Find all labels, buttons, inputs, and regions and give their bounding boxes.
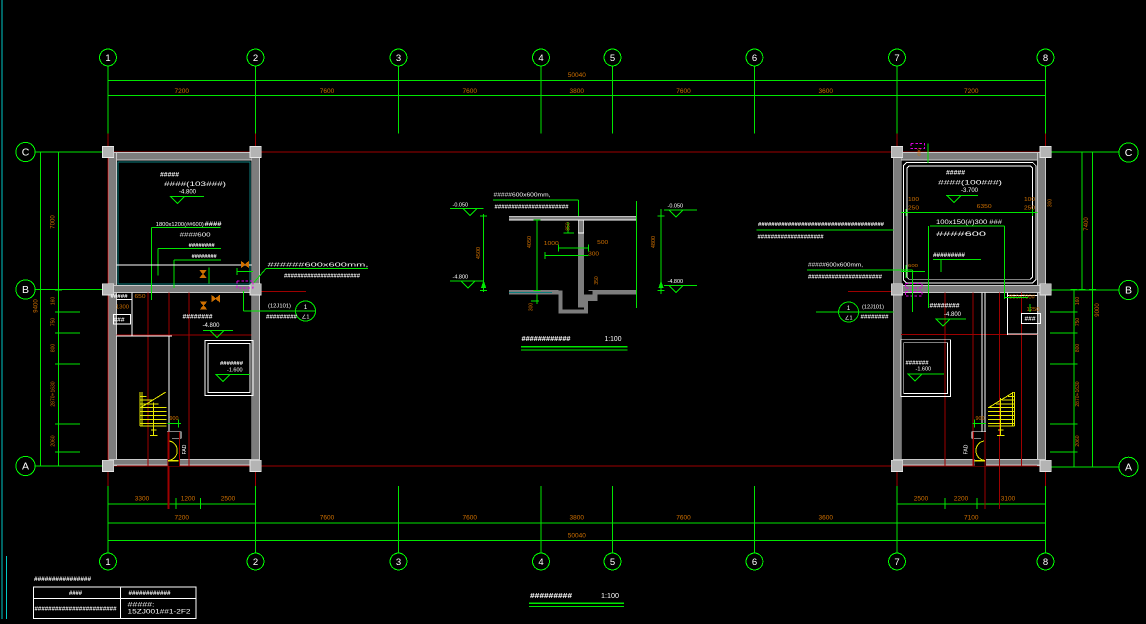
svg-text:###: ### bbox=[1025, 317, 1036, 323]
svg-text:B: B bbox=[22, 284, 29, 296]
svg-text:C: C bbox=[22, 147, 30, 159]
svg-text:#####: ##### bbox=[946, 171, 966, 177]
svg-text:3: 3 bbox=[396, 53, 401, 64]
svg-text:############: ############ bbox=[129, 591, 172, 597]
svg-text:8: 8 bbox=[1043, 557, 1048, 568]
svg-text:3800: 3800 bbox=[570, 88, 585, 95]
svg-text:500: 500 bbox=[597, 240, 608, 246]
svg-text:4050: 4050 bbox=[527, 236, 533, 248]
svg-text:7: 7 bbox=[894, 557, 899, 568]
svg-text:7600: 7600 bbox=[320, 515, 335, 522]
svg-text:4800: 4800 bbox=[651, 236, 657, 248]
svg-text:2060: 2060 bbox=[51, 435, 57, 446]
svg-text:900: 900 bbox=[170, 416, 179, 422]
svg-text:9000: 9000 bbox=[1095, 303, 1101, 317]
svg-text:1: 1 bbox=[105, 53, 110, 64]
svg-text:∠1: ∠1 bbox=[845, 315, 853, 322]
svg-text:7600: 7600 bbox=[463, 88, 478, 95]
svg-text:-3.700: -3.700 bbox=[961, 188, 979, 194]
svg-text:50040: 50040 bbox=[568, 72, 586, 79]
svg-text:-0.050: -0.050 bbox=[668, 204, 684, 210]
svg-text:300: 300 bbox=[529, 303, 535, 312]
svg-text:100: 100 bbox=[908, 197, 919, 203]
svg-text:7200: 7200 bbox=[175, 88, 190, 95]
svg-text:####(100###): ####(100###) bbox=[938, 181, 1002, 187]
svg-text:300: 300 bbox=[588, 252, 599, 258]
svg-text:9400: 9400 bbox=[34, 299, 40, 313]
svg-text:160: 160 bbox=[1075, 297, 1081, 306]
svg-text:800: 800 bbox=[51, 344, 57, 353]
svg-text:C: C bbox=[1125, 147, 1133, 159]
svg-text:########: ######## bbox=[930, 304, 961, 310]
svg-text:6350: 6350 bbox=[977, 204, 992, 210]
svg-text:A: A bbox=[1125, 461, 1132, 473]
svg-text:50040: 50040 bbox=[568, 533, 586, 540]
svg-text:######################: ###################### bbox=[808, 275, 882, 281]
svg-text:-4.800: -4.800 bbox=[203, 323, 221, 329]
svg-text:#####600x600mm,: #####600x600mm, bbox=[494, 193, 552, 199]
svg-text:################: ################ bbox=[34, 577, 92, 583]
svg-text:160: 160 bbox=[51, 297, 57, 306]
svg-text:7600: 7600 bbox=[676, 88, 691, 95]
svg-text:-4.800: -4.800 bbox=[179, 190, 197, 196]
svg-text:7400: 7400 bbox=[1084, 217, 1090, 231]
svg-text:850: 850 bbox=[566, 222, 572, 231]
svg-text:4: 4 bbox=[538, 557, 543, 568]
svg-text:########################: ######################## bbox=[35, 607, 118, 613]
svg-text:350: 350 bbox=[594, 276, 600, 285]
svg-text:########: ######## bbox=[192, 254, 217, 260]
svg-text:4: 4 bbox=[538, 53, 543, 64]
svg-text:750: 750 bbox=[51, 318, 57, 327]
svg-text:########: ######## bbox=[861, 315, 889, 321]
svg-text:1000: 1000 bbox=[544, 241, 559, 247]
svg-text:7: 7 bbox=[894, 53, 899, 64]
svg-text:3300: 3300 bbox=[135, 496, 150, 503]
svg-text:####600: ####600 bbox=[180, 233, 211, 239]
svg-text:####(103###): ####(103###) bbox=[164, 182, 226, 188]
svg-text:4500: 4500 bbox=[476, 247, 482, 259]
svg-text:############: ############ bbox=[522, 336, 571, 343]
svg-text:600: 600 bbox=[908, 263, 919, 268]
svg-text:FAD: FAD bbox=[964, 444, 970, 454]
svg-text:1200: 1200 bbox=[181, 496, 196, 503]
svg-text:-1.600: -1.600 bbox=[227, 368, 243, 374]
svg-text:5: 5 bbox=[610, 557, 615, 568]
svg-text:####600: ####600 bbox=[936, 232, 987, 238]
svg-text:1:100: 1:100 bbox=[605, 336, 622, 343]
svg-text:########: ######## bbox=[183, 315, 214, 321]
svg-text:3: 3 bbox=[396, 557, 401, 568]
svg-text:100x150(#)300 ###: 100x150(#)300 ### bbox=[936, 220, 1003, 226]
svg-text:250: 250 bbox=[1024, 206, 1035, 212]
svg-text:2500: 2500 bbox=[221, 496, 236, 503]
svg-text:8: 8 bbox=[1043, 53, 1048, 64]
svg-text:#####: ##### bbox=[160, 173, 180, 179]
svg-text:1300: 1300 bbox=[116, 305, 129, 311]
svg-text:FAD: FAD bbox=[182, 444, 188, 454]
svg-text:7100: 7100 bbox=[964, 515, 979, 522]
svg-text:900: 900 bbox=[976, 416, 985, 422]
svg-text:(12J101): (12J101) bbox=[268, 304, 291, 310]
svg-text:6: 6 bbox=[752, 53, 757, 64]
svg-text:650: 650 bbox=[135, 294, 146, 300]
svg-text:######################: ###################### bbox=[495, 205, 569, 211]
svg-text:2500: 2500 bbox=[914, 496, 929, 503]
svg-text:2: 2 bbox=[253, 53, 258, 64]
svg-text:7600: 7600 bbox=[676, 515, 691, 522]
svg-text:#########: ######### bbox=[530, 591, 573, 600]
svg-text:#########: ######### bbox=[933, 253, 966, 259]
svg-text:2200: 2200 bbox=[954, 496, 969, 503]
svg-text:15ZJ001##1-2F2: 15ZJ001##1-2F2 bbox=[128, 609, 192, 616]
svg-text:600: 600 bbox=[917, 148, 922, 156]
svg-text:###: ### bbox=[114, 318, 125, 324]
svg-text:100: 100 bbox=[1024, 197, 1035, 203]
svg-text:-4.800: -4.800 bbox=[453, 275, 469, 281]
svg-text:3600: 3600 bbox=[819, 515, 834, 522]
svg-text:7600: 7600 bbox=[463, 515, 478, 522]
svg-text:#######: ####### bbox=[220, 361, 243, 367]
svg-text:#########: ######### bbox=[266, 315, 297, 321]
svg-text:800: 800 bbox=[1075, 344, 1081, 353]
svg-text:250: 250 bbox=[908, 206, 919, 212]
svg-text:#####: ##### bbox=[111, 294, 128, 300]
svg-text:1250: 1250 bbox=[1027, 307, 1040, 313]
svg-text:#######################: ####################### bbox=[284, 274, 360, 280]
svg-text:3600: 3600 bbox=[819, 88, 834, 95]
svg-text:5: 5 bbox=[610, 53, 615, 64]
svg-text:-4.800: -4.800 bbox=[944, 312, 962, 318]
svg-text:750: 750 bbox=[1075, 318, 1081, 327]
svg-text:6: 6 bbox=[752, 557, 757, 568]
svg-text:1: 1 bbox=[105, 557, 110, 568]
svg-text:2870+1630: 2870+1630 bbox=[1075, 381, 1081, 406]
svg-text:7000: 7000 bbox=[51, 215, 57, 229]
svg-text:######600x600mm,: ######600x600mm, bbox=[268, 263, 370, 269]
svg-text:####: #### bbox=[69, 591, 83, 597]
svg-text:B: B bbox=[1125, 285, 1132, 297]
svg-text:-1.600: -1.600 bbox=[916, 367, 932, 373]
svg-text:##############################: ###################################### bbox=[758, 222, 884, 228]
svg-text:2: 2 bbox=[253, 557, 258, 568]
svg-text:7200: 7200 bbox=[175, 515, 190, 522]
svg-text:3100: 3100 bbox=[1001, 496, 1016, 503]
svg-text:-0.050: -0.050 bbox=[453, 203, 469, 209]
svg-text:7200: 7200 bbox=[964, 88, 979, 95]
svg-text:#####600x600mm,: #####600x600mm, bbox=[808, 263, 864, 269]
svg-text:∠1: ∠1 bbox=[302, 314, 310, 321]
svg-text:2060: 2060 bbox=[1075, 435, 1081, 446]
svg-text:####################: #################### bbox=[758, 235, 824, 241]
svg-text:1:100: 1:100 bbox=[601, 593, 619, 600]
svg-text:-4.800: -4.800 bbox=[668, 279, 684, 285]
svg-text:7600: 7600 bbox=[320, 88, 335, 95]
svg-text:2870+1630: 2870+1630 bbox=[51, 381, 57, 406]
svg-text:3800: 3800 bbox=[570, 515, 585, 522]
svg-text:(12J101): (12J101) bbox=[862, 305, 884, 311]
svg-text:300: 300 bbox=[1048, 199, 1054, 208]
svg-text:A: A bbox=[22, 461, 29, 473]
